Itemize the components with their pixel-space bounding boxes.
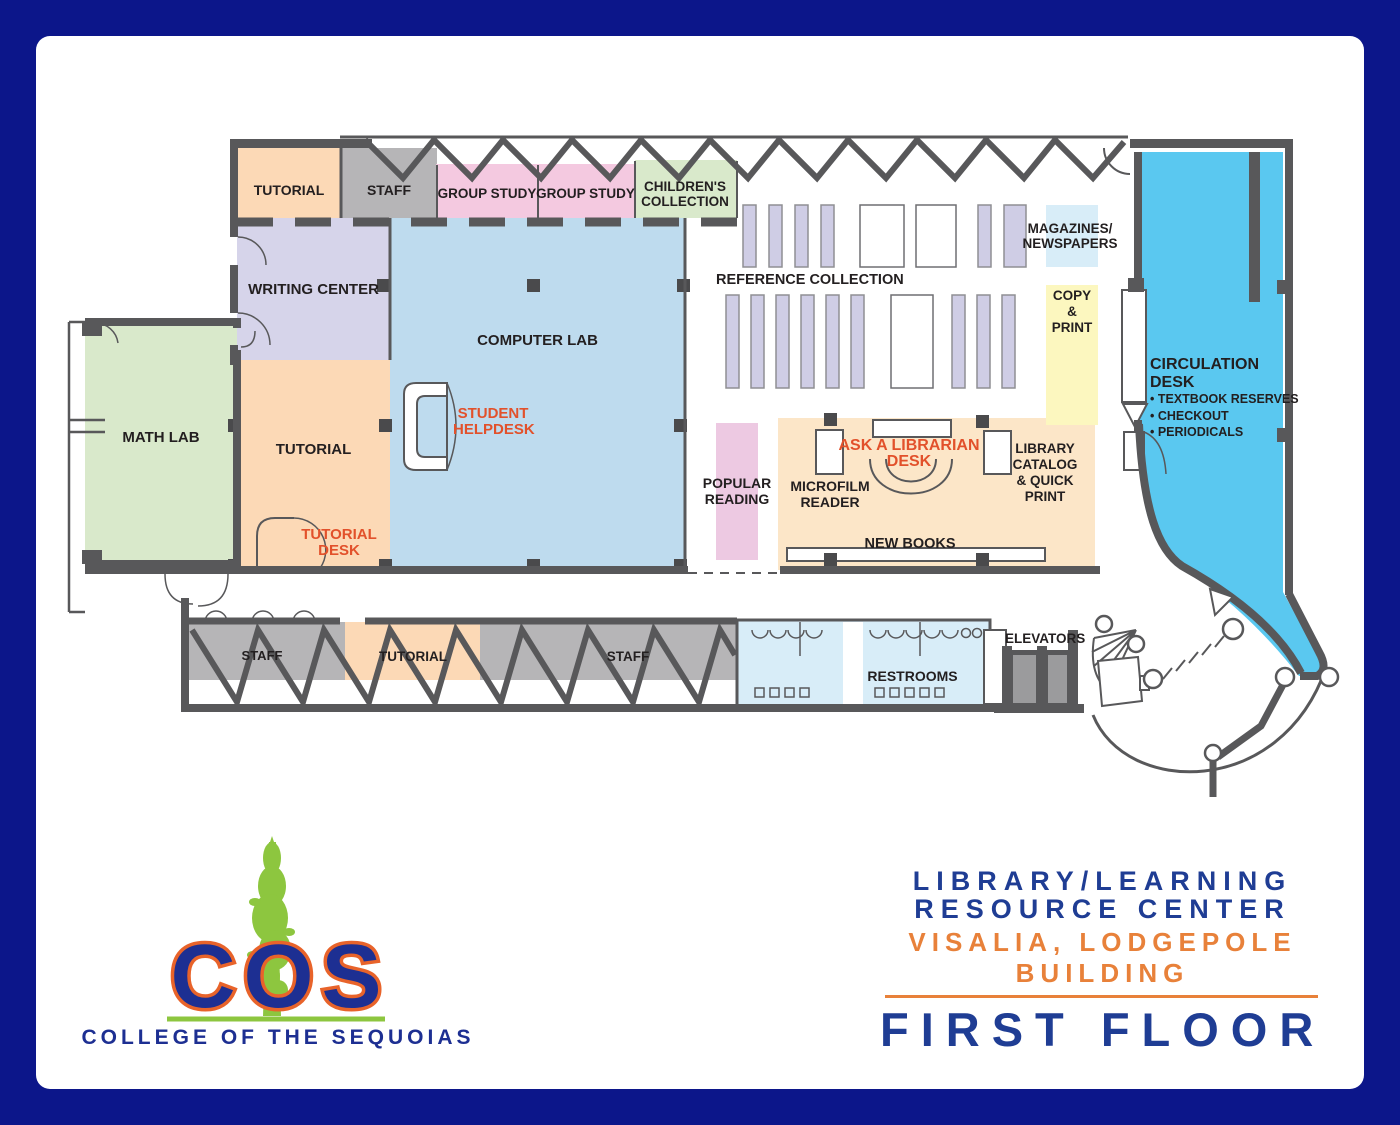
room-label-computer-lab: COMPUTER LAB bbox=[390, 333, 685, 350]
title-line4: BUILDING bbox=[885, 959, 1320, 988]
room-label-staff-top: STAFF bbox=[341, 183, 437, 199]
room-label-tutorial-top: TUTORIAL bbox=[237, 183, 341, 199]
magazines-label: MAGAZINES/ NEWSPAPERS bbox=[1020, 221, 1120, 251]
tutorial-desk-label: TUTORIAL DESK bbox=[297, 527, 381, 559]
room-label-group-study-a: GROUP STUDY bbox=[436, 186, 538, 201]
floor-title: FIRST FLOOR bbox=[880, 1004, 1325, 1057]
library-catalog-label: LIBRARY CATALOG & QUICK PRINT bbox=[1000, 441, 1090, 505]
popular-reading-label: POPULAR READING bbox=[697, 476, 777, 507]
logo-cos-text: COS bbox=[170, 927, 389, 1027]
ask-librarian-label: ASK A LIBRARIAN DESK bbox=[838, 438, 980, 470]
room-label-writing-center: WRITING CENTER bbox=[237, 282, 390, 299]
restroom-divider-gap bbox=[843, 622, 863, 706]
copy-print-label: COPY & PRINT bbox=[1044, 288, 1100, 336]
restrooms-shape bbox=[737, 620, 990, 708]
room-label-tutorial-main: TUTORIAL bbox=[237, 442, 390, 459]
title-line1: LIBRARY/LEARNING bbox=[890, 866, 1315, 896]
reference-collection-label: REFERENCE COLLECTION bbox=[716, 272, 884, 288]
title-line3: VISALIA, LODGEPOLE bbox=[885, 928, 1320, 957]
title-line2: RESOURCE CENTER bbox=[890, 894, 1315, 924]
reference-shelves bbox=[726, 205, 1026, 388]
room-label-tutorial-bottom: TUTORIAL bbox=[363, 649, 463, 664]
circulation-desk-title: CIRCULATION DESK bbox=[1150, 356, 1300, 391]
title-divider-line bbox=[885, 995, 1318, 998]
microfilm-reader-label: MICROFILM READER bbox=[785, 479, 875, 510]
restrooms-label: RESTROOMS bbox=[850, 669, 975, 685]
new-books-label: NEW BOOKS bbox=[848, 536, 972, 552]
elevators-label: ELEVATORS bbox=[1005, 631, 1085, 646]
room-label-math-lab: MATH LAB bbox=[85, 430, 237, 447]
room-label-group-study-b: GROUP STUDY bbox=[536, 186, 635, 201]
ask-librarian-counter bbox=[873, 420, 951, 437]
college-name-text: COLLEGE OF THE SEQUOIAS bbox=[73, 1026, 483, 1050]
student-helpdesk-label: STUDENT HELPDESK bbox=[453, 406, 533, 438]
room-label-staff-bottom-right: STAFF bbox=[578, 649, 678, 664]
circulation-desk-label: CIRCULATION DESK • TEXTBOOK RESERVES • C… bbox=[1150, 356, 1300, 441]
room-label-staff-bottom-left: STAFF bbox=[227, 649, 297, 664]
cos-logo: COS bbox=[167, 836, 390, 1027]
circulation-counter bbox=[1122, 290, 1146, 402]
floor-plan-poster: COS TUTORIAL STAFF GROUP STUDY GROUP STU… bbox=[0, 0, 1400, 1125]
room-label-childrens-collection: CHILDREN'S COLLECTION bbox=[631, 179, 739, 209]
